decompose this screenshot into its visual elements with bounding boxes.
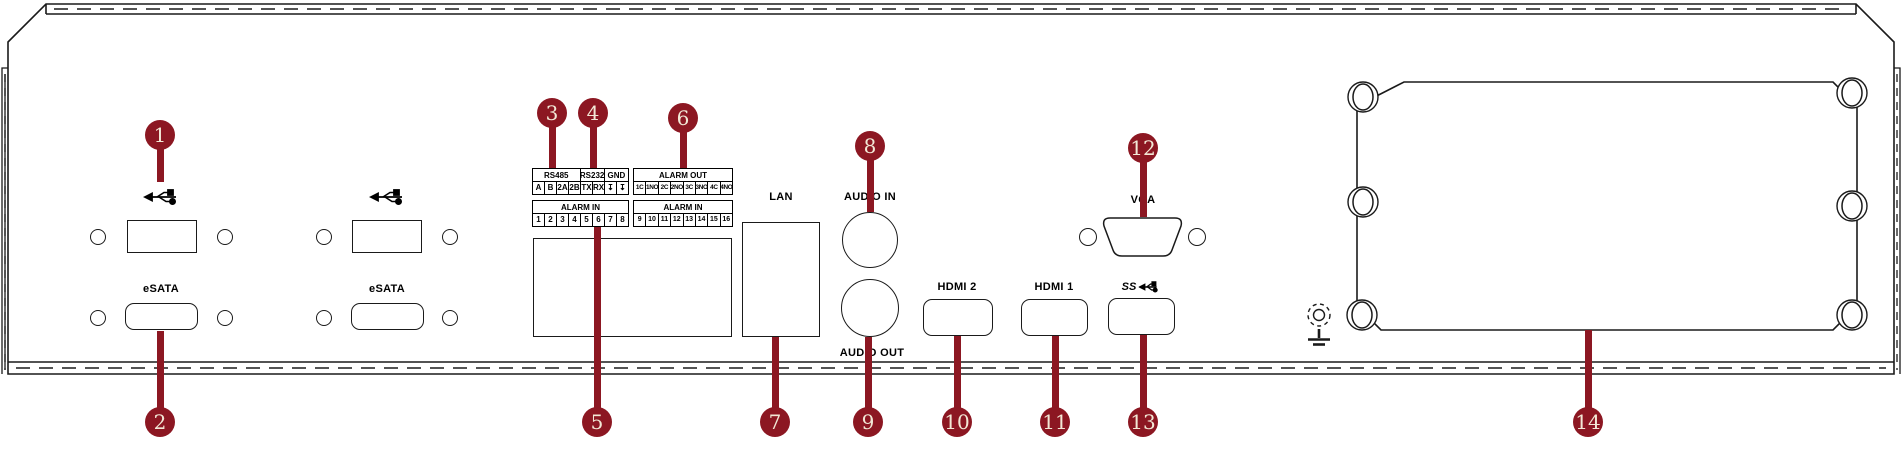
callout-stem-4: [590, 126, 597, 168]
usb-trident-icon: [143, 189, 179, 205]
ground-arrow-icon: ↧: [616, 181, 629, 195]
pin-cell: 2C: [658, 181, 671, 195]
hdmi1-label: HDMI 1: [1034, 281, 1073, 293]
rs232-header: RS232: [580, 168, 605, 182]
callout-7: 7: [760, 407, 790, 437]
callout-4: 4: [578, 98, 608, 128]
callout-stem-7: [772, 337, 779, 409]
esata-label-1: eSATA: [143, 283, 179, 295]
usb3-superspeed-icon: SS: [1122, 281, 1159, 293]
pin-cell: 3NO: [695, 181, 708, 195]
callout-stem-3: [549, 126, 556, 168]
screw-hole: [316, 229, 332, 245]
callout-stem-11: [1052, 336, 1059, 409]
pin-cell: 16: [720, 213, 733, 227]
pin-cell: 10: [645, 213, 658, 227]
esata-port-1: [125, 303, 198, 330]
esata-label-2: eSATA: [369, 283, 405, 295]
callout-stem-2: [157, 331, 164, 409]
power-supply-plate: [1347, 78, 1867, 330]
usb3-port: [1108, 298, 1175, 335]
callout-stem-1: [157, 148, 164, 182]
lan-port: [742, 222, 820, 337]
screw-hole: [1188, 228, 1206, 246]
pin-cell: 12: [670, 213, 683, 227]
callout-10: 10: [942, 407, 972, 437]
hdmi1-port: [1021, 299, 1088, 336]
usb-port-1: [127, 220, 197, 253]
screw-hole: [217, 310, 233, 326]
pin-cell: 4NO: [720, 181, 733, 195]
vga-port: [1104, 218, 1182, 256]
pin-cell: 11: [658, 213, 671, 227]
chassis-outline: [0, 0, 1902, 450]
alarm-out-header: ALARM OUT: [633, 168, 733, 182]
callout-11: 11: [1040, 407, 1070, 437]
usb-trident-icon: [1138, 281, 1158, 293]
callout-stem-8: [867, 159, 874, 212]
callout-stem-5: [594, 227, 601, 409]
screw-hole: [316, 310, 332, 326]
screw-hole: [1079, 228, 1097, 246]
callout-9: 9: [853, 407, 883, 437]
callout-stem-12: [1140, 161, 1147, 217]
audio-out-label: AUDIO OUT: [840, 347, 904, 359]
alarm-in-header: ALARM IN: [633, 200, 733, 214]
pin-cell: 8: [616, 213, 629, 227]
pin-cell: 2NO: [670, 181, 683, 195]
usb3-ss-label: SS: [1122, 281, 1137, 293]
pin-cell: 4C: [707, 181, 720, 195]
alarm-out-block: ALARM OUT 1C 1NO 2C 2NO 3C 3NO 4C 4NO: [633, 168, 733, 195]
hdmi2-port: [923, 299, 993, 336]
callout-stem-6: [680, 131, 687, 168]
pin-cell: 14: [695, 213, 708, 227]
callout-12: 12: [1128, 133, 1158, 163]
hdmi2-label: HDMI 2: [937, 281, 976, 293]
alarm-in-left-block: ALARM IN 1 2 3 4 5 6 7 8: [532, 200, 629, 227]
gnd-header: GND: [604, 168, 629, 182]
alarm-in-header: ALARM IN: [532, 200, 629, 214]
serial-terminal-block: RS485 RS232 GND A B 2A 2B TX RX ↧ ↧: [532, 168, 629, 195]
pin-cell: 1NO: [645, 181, 658, 195]
callout-stem-10: [954, 336, 961, 409]
screw-hole: [217, 229, 233, 245]
audio-out-jack: [841, 279, 899, 337]
rear-panel-diagram: eSATA eSATA RS485 RS232 GND A B 2A 2B T: [0, 0, 1902, 450]
callout-8: 8: [855, 131, 885, 161]
pin-cell: 15: [707, 213, 720, 227]
screw-hole: [90, 310, 106, 326]
terminal-connector-body: [533, 238, 732, 337]
callout-6: 6: [668, 103, 698, 133]
callout-5: 5: [582, 407, 612, 437]
screw-hole: [442, 310, 458, 326]
rs485-header: RS485: [532, 168, 581, 182]
callout-stem-13: [1140, 335, 1147, 409]
callout-2: 2: [145, 407, 175, 437]
callout-1: 1: [145, 120, 175, 150]
callout-stem-9: [865, 337, 872, 409]
screw-hole: [442, 229, 458, 245]
usb-trident-icon: [369, 189, 405, 205]
callout-3: 3: [537, 98, 567, 128]
pin-cell: 3C: [683, 181, 696, 195]
lan-label: LAN: [769, 191, 793, 203]
pin-cell: 13: [683, 213, 696, 227]
callout-14: 14: [1573, 407, 1603, 437]
usb-port-2: [352, 220, 422, 253]
pin-cell: 9: [633, 213, 646, 227]
callout-13: 13: [1128, 407, 1158, 437]
screw-hole: [90, 229, 106, 245]
callout-stem-14: [1585, 330, 1592, 409]
alarm-in-right-block: ALARM IN 9 10 11 12 13 14 15 16: [633, 200, 733, 227]
esata-port-2: [351, 303, 424, 330]
audio-in-jack: [842, 212, 898, 268]
pin-cell: 1C: [633, 181, 646, 195]
